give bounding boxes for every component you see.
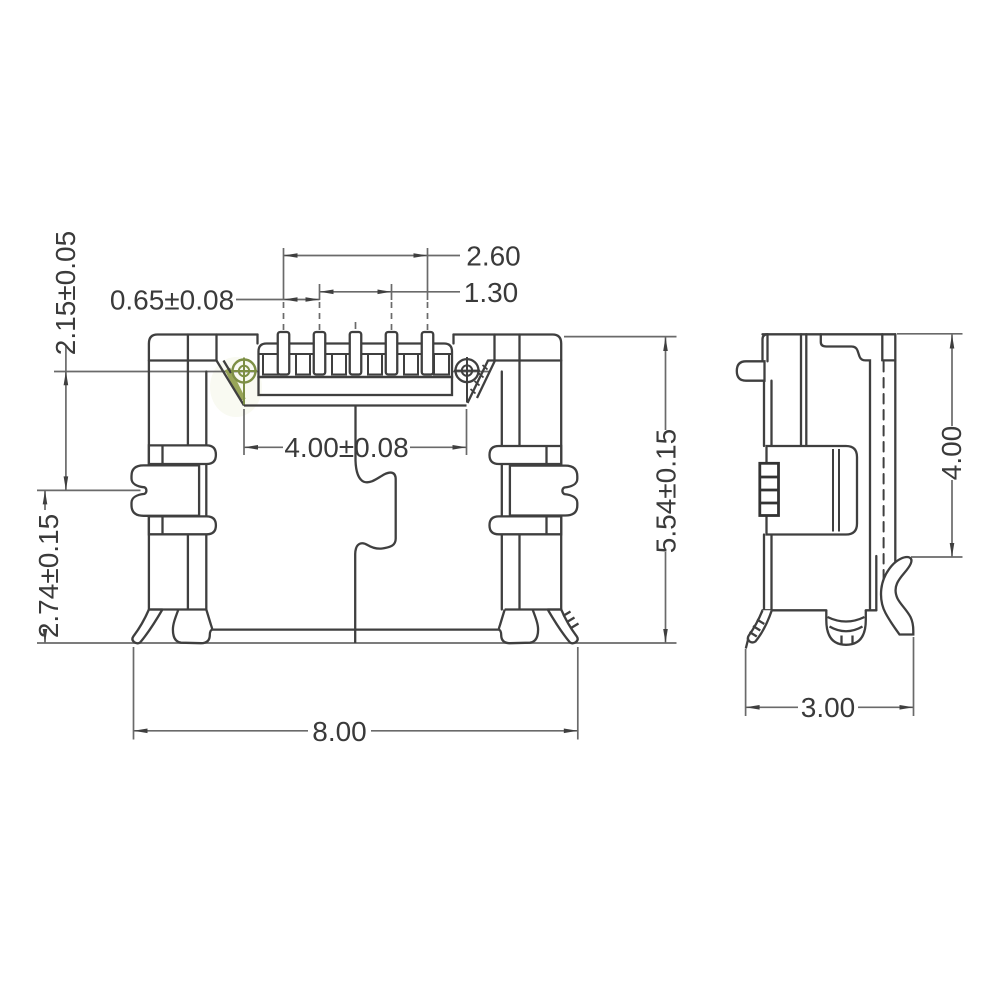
- svg-text:4.00: 4.00: [936, 426, 967, 481]
- svg-text:0.65±0.08: 0.65±0.08: [110, 285, 234, 316]
- svg-text:3.00: 3.00: [801, 692, 856, 723]
- svg-text:2.60: 2.60: [466, 241, 521, 272]
- svg-text:2.74±0.15: 2.74±0.15: [33, 514, 64, 638]
- svg-text:8.00: 8.00: [312, 716, 367, 747]
- svg-text:5.54±0.15: 5.54±0.15: [651, 429, 682, 553]
- svg-text:1.30: 1.30: [464, 277, 519, 308]
- svg-text:2.15±0.05: 2.15±0.05: [50, 231, 81, 355]
- svg-text:4.00±0.08: 4.00±0.08: [284, 432, 408, 463]
